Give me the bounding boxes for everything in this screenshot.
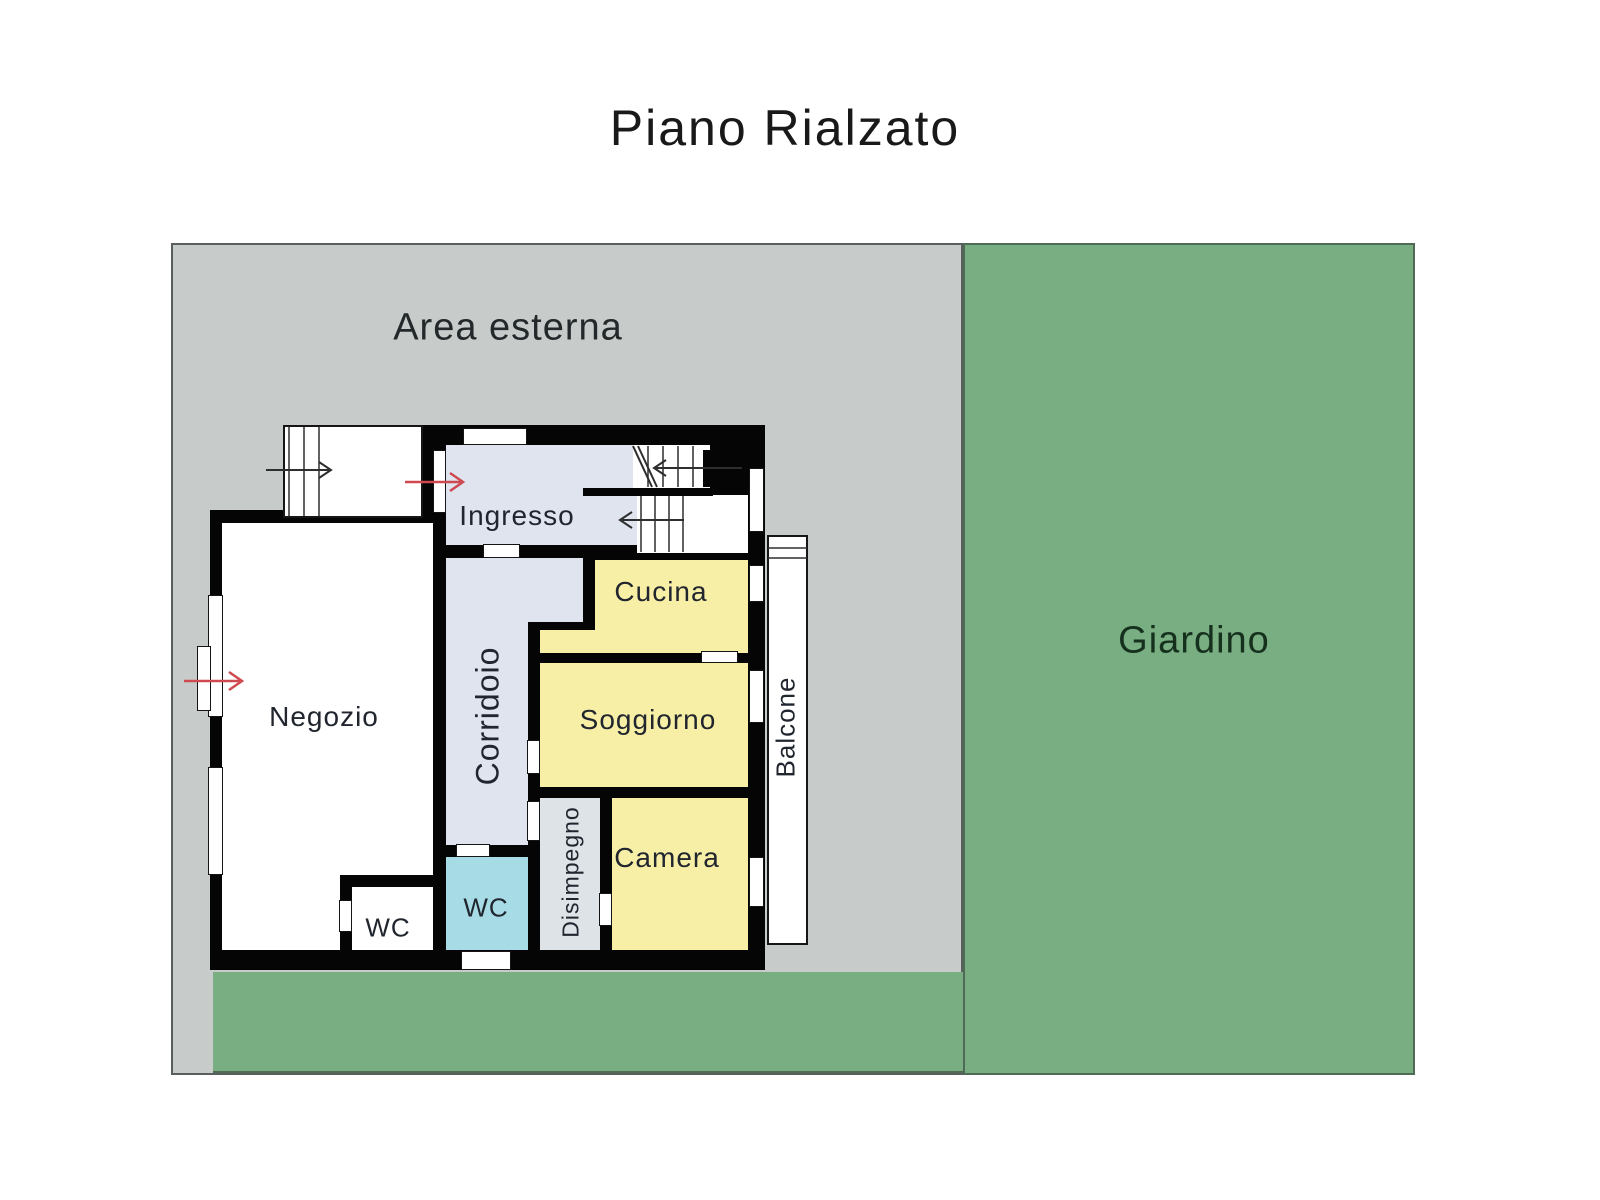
wc-shop-top-wall <box>340 875 433 887</box>
door-rear <box>461 951 511 970</box>
window-camera <box>749 857 764 907</box>
door-ingresso-corridoio <box>483 544 520 558</box>
cucina-label: Cucina <box>614 576 707 608</box>
ingresso-label: Ingresso <box>459 500 574 532</box>
wc-main-label: WC <box>463 893 508 924</box>
area-esterna-label: Area esterna <box>393 307 623 350</box>
disimpegno-label: Disimpegno <box>558 806 585 937</box>
door-soggiorno <box>527 740 540 774</box>
soggiorno-label: Soggiorno <box>580 704 717 736</box>
door-cucina <box>701 651 738 663</box>
external-staircase <box>283 425 423 518</box>
garden-strip-region <box>213 972 963 1073</box>
window-negozio-lower <box>208 767 223 875</box>
staircase-upper-flight <box>633 445 710 488</box>
door-negozio-frame <box>197 646 211 711</box>
room-camera <box>612 798 748 950</box>
floorplan-canvas: Piano Rialzato Area esterna Giardino Ing… <box>0 0 1600 1200</box>
door-wc-main <box>456 844 490 857</box>
window-soggiorno <box>749 670 764 723</box>
stair-divider-wall <box>583 488 713 496</box>
door-main-entrance <box>463 428 527 445</box>
door-wc-shop <box>339 900 352 932</box>
corridoio-label: Corridoio <box>470 647 507 786</box>
room-cucina-ext <box>540 630 600 653</box>
door-disimpegno <box>527 801 540 841</box>
wc-shop-label: WC <box>365 913 410 944</box>
window-stairs <box>749 468 764 532</box>
staircase-lower-flight <box>637 495 748 553</box>
balcone-label: Balcone <box>771 677 802 778</box>
window-cucina <box>749 565 764 602</box>
door-ingresso-left <box>433 450 446 513</box>
negozio-label: Negozio <box>269 701 379 733</box>
giardino-label: Giardino <box>1118 620 1270 663</box>
camera-label: Camera <box>614 842 720 874</box>
plan-title: Piano Rialzato <box>610 99 960 157</box>
door-camera <box>599 893 612 926</box>
